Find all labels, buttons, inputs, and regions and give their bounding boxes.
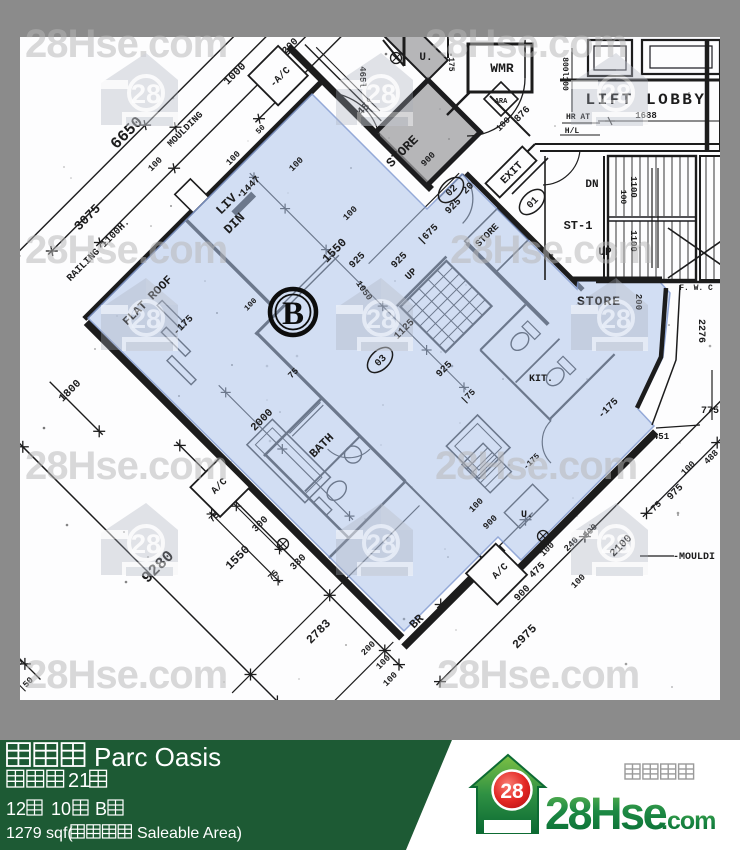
svg-text:Saleable Area): Saleable Area) <box>137 825 242 842</box>
svg-text:28: 28 <box>131 79 161 109</box>
svg-text:U.: U. <box>521 510 533 521</box>
svg-text:775: 775 <box>701 406 719 417</box>
svg-text:.com: .com <box>661 807 715 835</box>
svg-text:ARA: ARA <box>495 98 508 106</box>
svg-text:28: 28 <box>601 529 631 559</box>
svg-text:12: 12 <box>6 799 26 819</box>
svg-text:21: 21 <box>68 770 90 792</box>
svg-text:-MOULDI: -MOULDI <box>673 552 715 563</box>
svg-text:28Hse.com: 28Hse.com <box>425 22 627 66</box>
svg-text:28: 28 <box>131 529 161 559</box>
svg-text:28Hse.com: 28Hse.com <box>25 444 227 488</box>
svg-text:1279 sqf(: 1279 sqf( <box>6 825 73 842</box>
svg-text:28Hse: 28Hse <box>545 788 667 839</box>
svg-text:28Hse.com: 28Hse.com <box>450 228 652 272</box>
svg-text:28Hse.com: 28Hse.com <box>435 444 637 488</box>
svg-text:F. W. C: F. W. C <box>679 284 713 293</box>
svg-text:KIT.: KIT. <box>529 374 553 385</box>
svg-text:H/L: H/L <box>565 127 580 136</box>
svg-text:28Hse.com: 28Hse.com <box>25 653 227 697</box>
svg-text:451: 451 <box>653 432 670 442</box>
svg-text:28: 28 <box>366 529 396 559</box>
svg-text:B: B <box>282 296 304 332</box>
svg-text:Parc Oasis: Parc Oasis <box>94 742 221 772</box>
svg-text:1100: 1100 <box>628 176 638 198</box>
svg-text:28Hse.com: 28Hse.com <box>437 653 639 697</box>
svg-text:28Hse.com: 28Hse.com <box>25 22 227 66</box>
svg-text:2276: 2276 <box>695 319 706 343</box>
svg-text:28: 28 <box>601 304 631 334</box>
svg-text:28: 28 <box>131 304 161 334</box>
svg-text:DN: DN <box>585 179 598 191</box>
svg-text:28: 28 <box>601 79 631 109</box>
svg-text:28: 28 <box>366 304 396 334</box>
svg-text:28: 28 <box>500 780 524 803</box>
svg-text:10: 10 <box>51 799 71 819</box>
svg-text:28Hse.com: 28Hse.com <box>25 228 227 272</box>
svg-text:28: 28 <box>366 79 396 109</box>
svg-text:100: 100 <box>618 190 627 205</box>
svg-text:B: B <box>95 799 107 819</box>
